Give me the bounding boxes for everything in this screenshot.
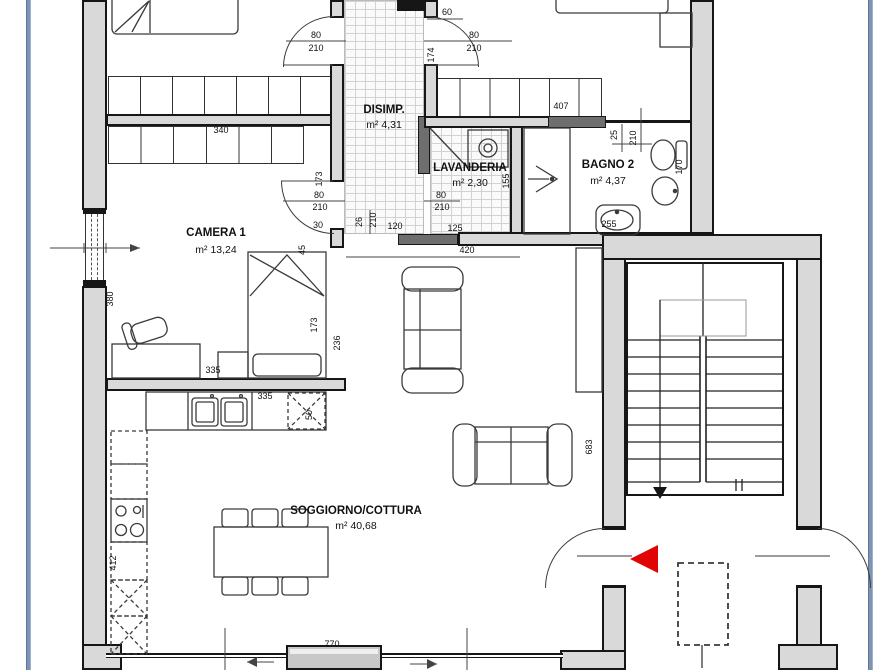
wall-hall-right-b	[424, 64, 438, 118]
slide-arrow-right	[427, 659, 437, 669]
dim-173-wall: 173	[315, 167, 325, 191]
nightstand-top-right	[660, 13, 692, 47]
shower-bagno2	[524, 128, 570, 234]
wall-stair-top	[602, 234, 822, 260]
dim-683: 683	[585, 435, 595, 459]
dim-170: 170	[675, 155, 685, 179]
wall-left-lower	[82, 286, 107, 652]
door-lavanderia-height: 210	[430, 203, 454, 213]
hallway-floor-tiles	[344, 0, 424, 234]
threshold-hall-living	[398, 234, 458, 245]
door-top-right-height: 210	[461, 44, 487, 54]
wall-stair-left-upper	[602, 258, 626, 528]
dining-table	[214, 527, 328, 577]
dim-30: 30	[310, 221, 326, 231]
stairwell-box	[626, 262, 784, 496]
wall-entrance-bottom-left	[560, 650, 626, 670]
chair-camera1	[121, 311, 170, 350]
sliding-door-bagno2	[548, 116, 606, 128]
wall-entrance-right-corner	[778, 644, 838, 670]
dim-340: 340	[206, 126, 236, 136]
dim-255: 255	[596, 220, 622, 230]
door-arc-entrance-right	[818, 528, 871, 588]
dim-173-bed: 173	[310, 313, 320, 337]
dim-26: 26	[355, 214, 365, 230]
dim-174: 174	[427, 43, 437, 67]
sofa-two-seat	[402, 267, 463, 393]
wall-camera1-bottom	[106, 378, 346, 391]
dim-236: 236	[333, 331, 343, 355]
entrance-marker-triangle	[630, 545, 658, 573]
door-bagno2-height: 210	[629, 126, 639, 150]
room-area-soggiorno: m² 40,68	[256, 521, 456, 533]
room-label-disimp: DISIMP.	[342, 104, 426, 117]
page-frame-right	[868, 0, 873, 670]
dim-420: 420	[452, 246, 482, 256]
door-top-left-height: 210	[303, 44, 329, 54]
window-left	[85, 214, 104, 280]
wall-laundry-bath-top	[424, 116, 550, 128]
door-top-right-width: 80	[464, 31, 484, 41]
wall-right-outer-top	[690, 0, 714, 238]
window-glass-line	[97, 214, 98, 280]
door-lavanderia-width: 80	[432, 191, 450, 201]
door-arc-entrance-left	[545, 528, 605, 588]
dim-125: 125	[442, 224, 468, 234]
bed-double-top-left	[112, 0, 238, 34]
kitchen-left-run	[111, 431, 147, 654]
door-camera1-width: 80	[310, 191, 328, 201]
dim-155: 155	[502, 169, 512, 193]
wall-left-upper	[82, 0, 107, 210]
dim-770: 770	[318, 640, 346, 650]
room-area-camera1: m² 13,24	[166, 245, 266, 257]
shaft-dashed-outline	[678, 563, 728, 645]
dim-407: 407	[548, 102, 574, 112]
dim-50: 50	[305, 407, 315, 423]
door-camera1-height: 210	[308, 203, 332, 213]
slide-arrow-left	[247, 657, 257, 667]
room-label-camera1: CAMERA 1	[166, 227, 266, 240]
dim-60: 60	[437, 8, 457, 18]
room-area-bagno2: m² 4,37	[566, 176, 650, 188]
bed-top-right	[556, 0, 668, 13]
floor-plan: DISIMP. m² 4,31 LAVANDERIA m² 2,30 BAGNO…	[0, 0, 893, 670]
wall-stair-right-upper	[796, 258, 822, 528]
bidet	[652, 177, 678, 205]
desk-camera1	[112, 344, 200, 378]
wardrobe-top-right-room	[430, 78, 602, 118]
room-label-soggiorno: SOGGIORNO/COTTURA	[256, 505, 456, 518]
dim-120: 120	[382, 222, 408, 232]
dim-412: 412	[109, 551, 119, 575]
dim-45: 45	[298, 242, 308, 258]
wardrobe-top-room	[108, 76, 332, 116]
dim-335-bed: 335	[200, 366, 226, 376]
kitchen-peninsula	[146, 392, 326, 430]
window-wall-bottom-right	[380, 653, 563, 658]
room-area-disimp: m² 4,31	[342, 120, 426, 132]
dim-380: 380	[106, 287, 116, 311]
door-top-left-width: 80	[306, 31, 326, 41]
wall-ledge	[576, 248, 602, 392]
dim-210-disimp: 210	[369, 208, 379, 232]
wall-stub-top	[397, 0, 425, 11]
window-wall-bottom-left	[106, 653, 288, 658]
window-glass-line	[91, 214, 92, 280]
page-frame-left	[26, 0, 31, 670]
door-opening-entrance-left	[602, 528, 626, 587]
room-label-bagno2: BAGNO 2	[566, 159, 650, 172]
dim-335-counter: 335	[252, 392, 278, 402]
door-bagno2-width: 25	[610, 126, 620, 144]
door-arc-top-left	[283, 16, 334, 67]
sofa-three-seat	[453, 424, 572, 486]
